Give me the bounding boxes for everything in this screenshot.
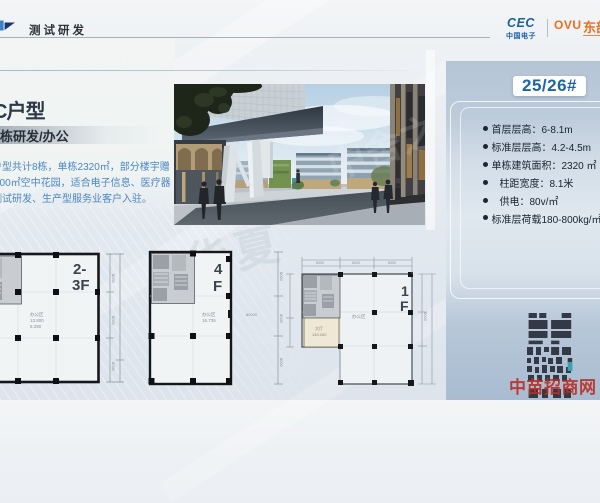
- svg-text:1: 1: [401, 283, 409, 299]
- svg-text:80000: 80000: [246, 312, 258, 317]
- svg-text:8000: 8000: [111, 274, 116, 284]
- svg-text:F: F: [213, 278, 222, 295]
- svg-text:8.290: 8.290: [30, 324, 42, 329]
- svg-text:办公区: 办公区: [352, 313, 366, 320]
- svg-text:3F: 3F: [72, 277, 90, 294]
- svg-text:8000: 8000: [352, 261, 360, 265]
- svg-text:8000: 8000: [388, 261, 396, 265]
- svg-text:大厅: 大厅: [315, 325, 323, 331]
- svg-text:办公区: 办公区: [202, 311, 216, 318]
- svg-text:F: F: [400, 298, 409, 314]
- svg-text:145.200: 145.200: [312, 332, 327, 337]
- svg-text:2-: 2-: [73, 261, 86, 278]
- svg-text:8000: 8000: [111, 316, 116, 326]
- svg-text:4: 4: [214, 261, 223, 278]
- svg-text:8000: 8000: [316, 261, 324, 265]
- svg-text:办公区: 办公区: [30, 311, 44, 318]
- svg-text:13.800: 13.800: [30, 318, 44, 323]
- svg-text:8000: 8000: [111, 362, 116, 372]
- svg-text:8000: 8000: [423, 312, 428, 322]
- svg-text:16.735: 16.735: [202, 318, 216, 323]
